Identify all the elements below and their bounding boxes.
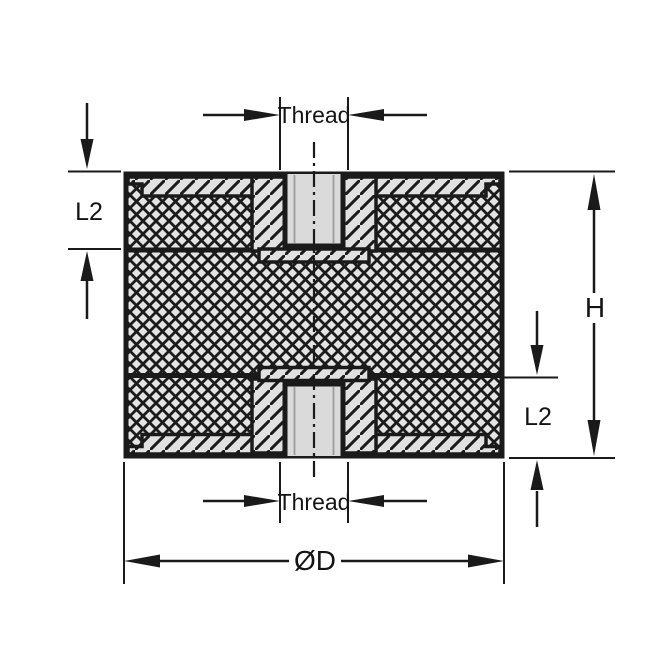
arrowhead-down-icon	[81, 139, 94, 169]
mount-body	[124, 142, 504, 478]
diameter-label: ØD	[294, 545, 336, 576]
l2-right-label: L2	[524, 403, 552, 431]
arrowhead-up-icon	[531, 460, 544, 490]
arrowhead-left-icon	[348, 109, 384, 121]
arrowhead-right-icon	[244, 109, 280, 121]
arrowhead-down-icon	[588, 420, 601, 456]
dim-l2-left: L2	[68, 103, 121, 319]
dim-thread-top: Thread	[203, 97, 427, 170]
dim-l2-right: L2	[500, 311, 558, 527]
drawing-canvas: Thread L2 H L2 Thread	[0, 0, 670, 670]
l2-left-label: L2	[75, 198, 103, 226]
arrowhead-right-icon	[244, 495, 280, 507]
arrowhead-left-icon	[124, 555, 160, 568]
height-label: H	[585, 292, 605, 323]
arrowhead-up-icon	[588, 174, 601, 210]
arrowhead-down-icon	[531, 345, 544, 375]
arrowhead-up-icon	[81, 251, 94, 281]
technical-drawing: Thread L2 H L2 Thread	[0, 0, 670, 670]
thread-top-label: Thread	[278, 102, 351, 128]
arrowhead-right-icon	[468, 555, 504, 568]
thread-bottom-label: Thread	[278, 489, 351, 515]
dim-diameter: ØD	[124, 462, 504, 584]
arrowhead-left-icon	[348, 495, 384, 507]
